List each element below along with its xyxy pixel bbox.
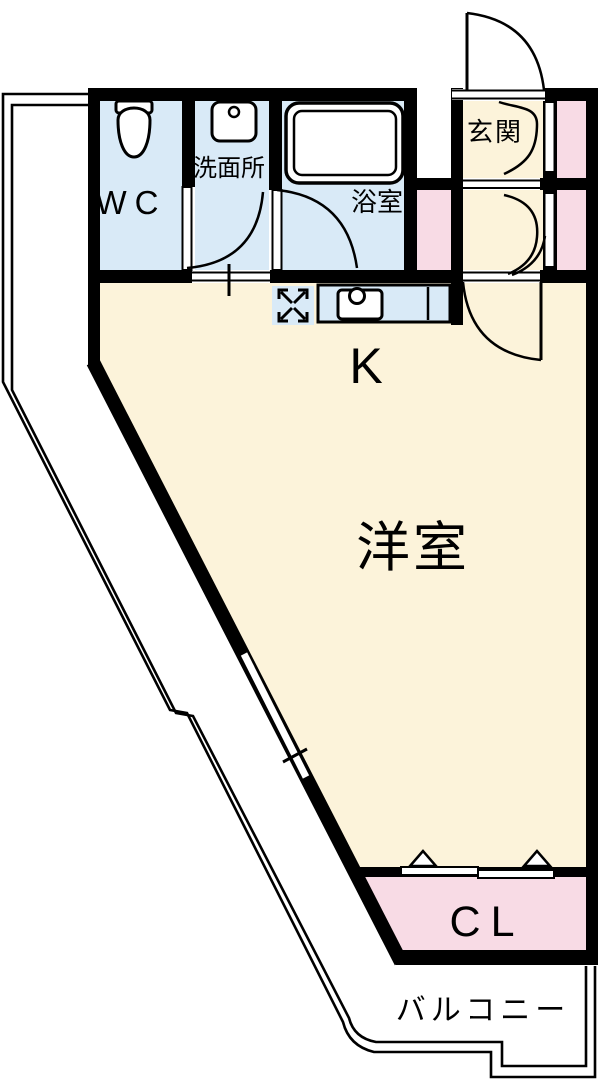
wall-top	[88, 88, 417, 101]
storage-upper-opening	[546, 103, 554, 171]
washbasin-icon	[212, 102, 256, 141]
wall-left	[88, 88, 100, 365]
balcony-label: バルコニー	[396, 994, 570, 1027]
storage-left	[417, 190, 451, 270]
wall-washroom-bathroom	[269, 101, 282, 190]
wc-label: WC	[96, 184, 167, 221]
kitchen-sink-icon	[338, 289, 382, 320]
gas-stove-icon	[272, 286, 314, 325]
wall-entrance-left	[451, 88, 463, 325]
wall-outer-right	[586, 88, 598, 965]
entrance-label: 玄関	[467, 117, 523, 147]
bathroom-door-leaf	[273, 190, 282, 270]
wall-bottom-b	[270, 270, 463, 283]
kitchen-label: K	[349, 338, 382, 394]
washroom-door-leaf	[183, 187, 192, 270]
bathtub-icon	[286, 103, 403, 183]
storage-lower-opening	[546, 194, 554, 266]
storage-right-upper	[557, 101, 586, 178]
western-room-label: 洋室	[356, 518, 470, 578]
wall-mid-a	[404, 178, 463, 190]
bathroom-label: 浴室	[351, 187, 403, 217]
washroom-label: 洗面所	[193, 155, 265, 182]
floor-plan: WC 洗面所 浴室 玄関 K 洋室 CL バルコニー	[0, 0, 600, 1085]
storage-right-lower	[557, 190, 586, 270]
wall-bottom-a	[88, 270, 192, 283]
closet-sliding-panel-a	[401, 867, 478, 875]
kitchen-counter	[318, 285, 450, 322]
closet-label: CL	[450, 898, 525, 946]
closet-sliding-panel-b	[478, 870, 554, 878]
wall-bottom-outer	[396, 950, 598, 965]
